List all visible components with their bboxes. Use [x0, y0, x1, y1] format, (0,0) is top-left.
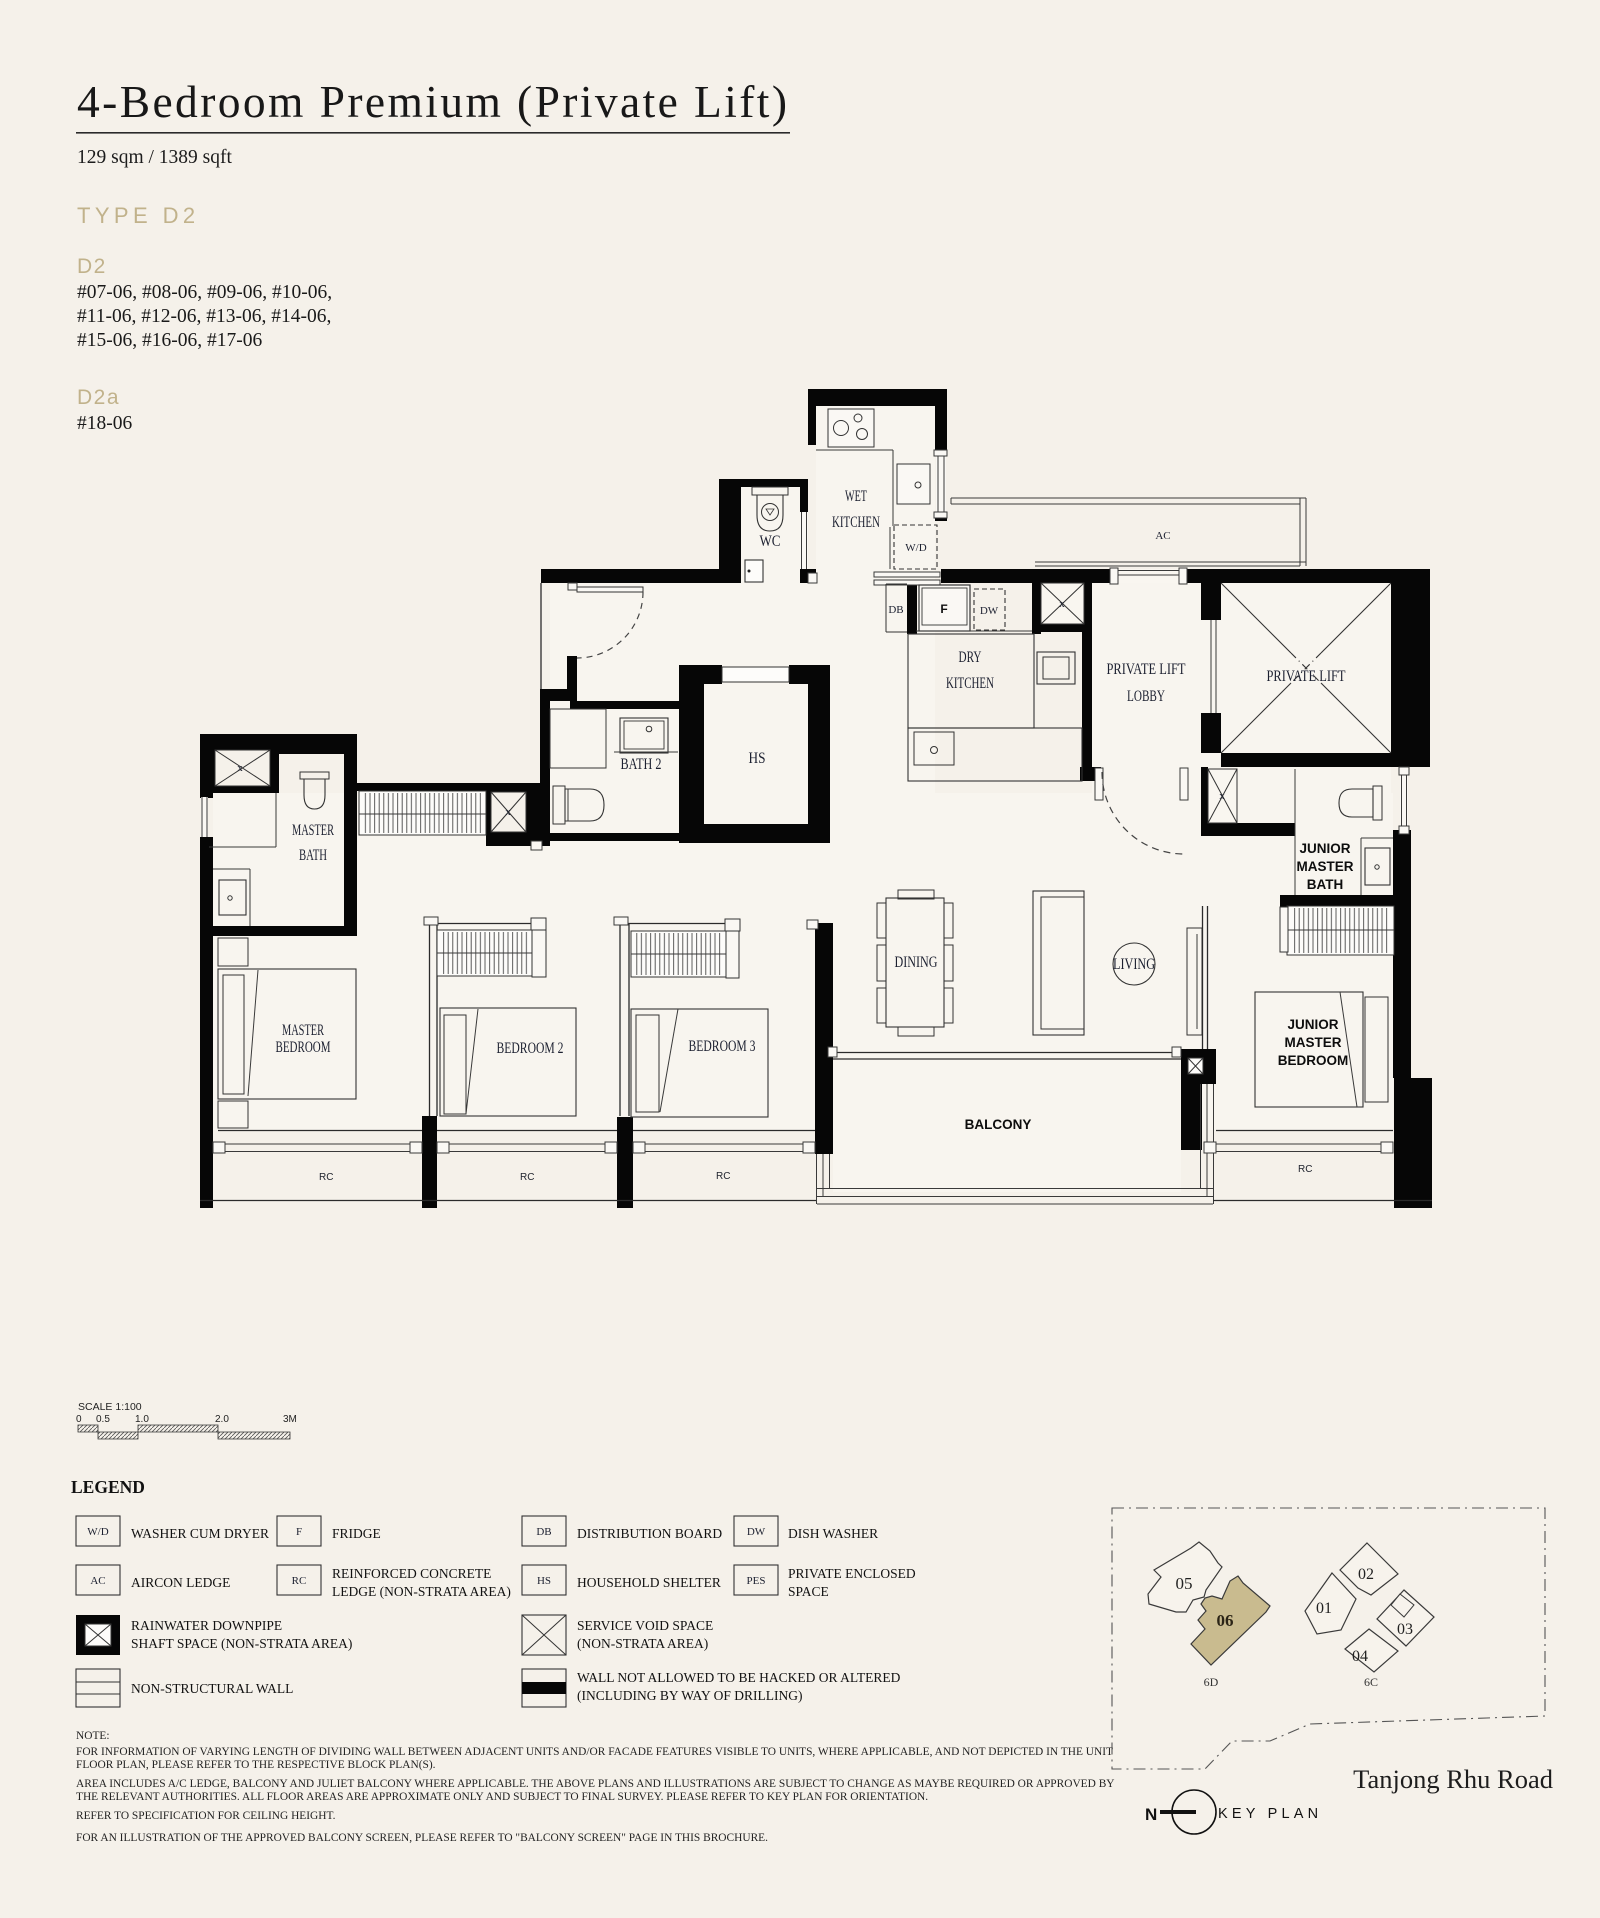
svg-text:BATH 2: BATH 2 [621, 756, 662, 773]
svg-text:x: x [1059, 598, 1065, 610]
svg-text:MASTER: MASTER [1297, 859, 1354, 874]
svg-text:PES: PES [747, 1575, 766, 1587]
svg-text:AC: AC [1155, 530, 1170, 542]
svg-text:DISTRIBUTION BOARD: DISTRIBUTION BOARD [577, 1526, 722, 1541]
svg-text:AC: AC [90, 1575, 105, 1587]
svg-text:SHAFT SPACE (NON-STRATA AREA): SHAFT SPACE (NON-STRATA AREA) [131, 1636, 352, 1651]
svg-text:#18-06: #18-06 [77, 413, 132, 434]
svg-text:BEDROOM: BEDROOM [276, 1039, 331, 1056]
svg-text:129 sqm / 1389 sqft: 129 sqm / 1389 sqft [77, 147, 233, 168]
svg-text:RC: RC [319, 1172, 333, 1183]
svg-text:#11-06, #12-06, #13-06, #14-06: #11-06, #12-06, #13-06, #14-06, [77, 306, 331, 327]
svg-text:x: x [505, 806, 511, 818]
svg-text:3M: 3M [283, 1414, 297, 1425]
svg-text:F: F [296, 1526, 302, 1538]
svg-text:BEDROOM: BEDROOM [1278, 1053, 1349, 1068]
svg-text:NON-STRUCTURAL WALL: NON-STRUCTURAL WALL [131, 1681, 293, 1696]
svg-text:D2a: D2a [77, 386, 120, 409]
svg-text:FOR INFORMATION OF VARYING LEN: FOR INFORMATION OF VARYING LENGTH OF DIV… [76, 1746, 1113, 1758]
svg-text:(NON-STRATA AREA): (NON-STRATA AREA) [577, 1636, 708, 1651]
svg-text:6D: 6D [1204, 1675, 1219, 1689]
svg-text:BATH: BATH [1307, 877, 1344, 892]
svg-text:05: 05 [1176, 1574, 1193, 1593]
svg-text:06: 06 [1217, 1611, 1234, 1630]
svg-text:MASTER: MASTER [292, 822, 334, 839]
svg-text:04: 04 [1352, 1648, 1368, 1665]
svg-text:LEDGE (NON-STRATA AREA): LEDGE (NON-STRATA AREA) [332, 1584, 511, 1599]
svg-text:WC: WC [760, 533, 781, 550]
svg-text:HS: HS [749, 750, 766, 767]
svg-text:0.5: 0.5 [96, 1414, 110, 1425]
svg-text:PRIVATE LIFT: PRIVATE LIFT [1267, 668, 1346, 685]
svg-text:HS: HS [537, 1575, 551, 1587]
svg-text:LEGEND: LEGEND [71, 1477, 145, 1497]
svg-text:DW: DW [747, 1526, 766, 1538]
svg-text:RAINWATER DOWNPIPE: RAINWATER DOWNPIPE [131, 1618, 282, 1633]
svg-text:BEDROOM 3: BEDROOM 3 [689, 1038, 756, 1055]
svg-text:F: F [940, 602, 947, 616]
svg-text:DINING: DINING [895, 954, 938, 971]
svg-text:DW: DW [980, 605, 999, 617]
svg-text:1.0: 1.0 [135, 1414, 149, 1425]
svg-text:03: 03 [1397, 1621, 1413, 1638]
svg-text:WET: WET [845, 488, 867, 505]
svg-text:JUNIOR: JUNIOR [1287, 1017, 1338, 1032]
svg-text:01: 01 [1316, 1600, 1332, 1617]
svg-text:DB: DB [888, 604, 903, 616]
svg-text:KITCHEN: KITCHEN [946, 675, 994, 692]
svg-text:02: 02 [1358, 1566, 1374, 1583]
svg-text:0: 0 [76, 1414, 82, 1425]
svg-text:AIRCON LEDGE: AIRCON LEDGE [131, 1575, 230, 1590]
svg-text:DISH WASHER: DISH WASHER [788, 1526, 878, 1541]
svg-text:AREA INCLUDES A/C LEDGE, BALCO: AREA INCLUDES A/C LEDGE, BALCONY AND JUL… [76, 1778, 1115, 1790]
svg-text:(INCLUDING BY WAY OF DRILLING): (INCLUDING BY WAY OF DRILLING) [577, 1688, 803, 1703]
svg-text:6C: 6C [1364, 1675, 1378, 1689]
svg-text:NOTE:: NOTE: [76, 1730, 110, 1742]
svg-text:FRIDGE: FRIDGE [332, 1526, 381, 1541]
svg-text:SPACE: SPACE [788, 1584, 829, 1599]
svg-text:DRY: DRY [959, 649, 982, 666]
svg-text:KITCHEN: KITCHEN [832, 514, 880, 531]
svg-text:N: N [1145, 1805, 1157, 1824]
svg-text:LOBBY: LOBBY [1127, 688, 1165, 705]
svg-text:BALCONY: BALCONY [965, 1117, 1032, 1132]
svg-text:WALL NOT ALLOWED TO BE HACKED: WALL NOT ALLOWED TO BE HACKED OR ALTERED [577, 1670, 901, 1685]
svg-text:FLOOR PLAN, PLEASE REFER TO TH: FLOOR PLAN, PLEASE REFER TO THE RESPECTI… [76, 1759, 436, 1771]
svg-text:4-Bedroom Premium (Private Lif: 4-Bedroom Premium (Private Lift) [77, 76, 789, 127]
svg-text:W/D: W/D [87, 1526, 108, 1538]
svg-text:KEY PLAN: KEY PLAN [1218, 1806, 1322, 1822]
svg-text:RC: RC [520, 1172, 534, 1183]
svg-text:2.0: 2.0 [215, 1414, 229, 1425]
svg-text:W/D: W/D [905, 542, 926, 554]
svg-text:SCALE 1:100: SCALE 1:100 [78, 1401, 142, 1413]
svg-text:TYPE D2: TYPE D2 [77, 203, 200, 228]
svg-text:#07-06, #08-06, #09-06, #10-06: #07-06, #08-06, #09-06, #10-06, [77, 282, 332, 303]
svg-text:JUNIOR: JUNIOR [1299, 841, 1350, 856]
svg-text:MASTER: MASTER [282, 1022, 324, 1039]
svg-text:RC: RC [292, 1575, 307, 1587]
svg-text:THE RELEVANT AUTHORITIES. ALL: THE RELEVANT AUTHORITIES. ALL FLOOR AREA… [76, 1791, 928, 1803]
svg-text:BATH: BATH [299, 847, 327, 864]
svg-text:x: x [237, 762, 243, 774]
svg-text:REINFORCED CONCRETE: REINFORCED CONCRETE [332, 1566, 491, 1581]
svg-text:RC: RC [1298, 1164, 1312, 1175]
svg-text:PRIVATE ENCLOSED: PRIVATE ENCLOSED [788, 1566, 916, 1581]
svg-text:WASHER CUM DRYER: WASHER CUM DRYER [131, 1526, 269, 1541]
svg-text:PRIVATE LIFT: PRIVATE LIFT [1107, 661, 1186, 678]
svg-text:BEDROOM 2: BEDROOM 2 [497, 1040, 564, 1057]
svg-text:SERVICE VOID SPACE: SERVICE VOID SPACE [577, 1618, 713, 1633]
svg-text:LIVING: LIVING [1113, 956, 1155, 973]
svg-text:D2: D2 [77, 255, 107, 278]
svg-text:RC: RC [716, 1171, 730, 1182]
svg-text:FOR AN ILLUSTRATION OF THE APP: FOR AN ILLUSTRATION OF THE APPROVED BALC… [76, 1832, 768, 1844]
svg-text:REFER TO SPECIFICATION FOR CEI: REFER TO SPECIFICATION FOR CEILING HEIGH… [76, 1810, 336, 1822]
svg-text:DB: DB [536, 1526, 551, 1538]
svg-text:HOUSEHOLD SHELTER: HOUSEHOLD SHELTER [577, 1575, 721, 1590]
svg-text:x: x [1219, 790, 1225, 802]
svg-text:MASTER: MASTER [1285, 1035, 1342, 1050]
svg-text:#15-06, #16-06, #17-06: #15-06, #16-06, #17-06 [77, 330, 262, 351]
svg-text:Tanjong Rhu Road: Tanjong Rhu Road [1353, 1764, 1553, 1794]
